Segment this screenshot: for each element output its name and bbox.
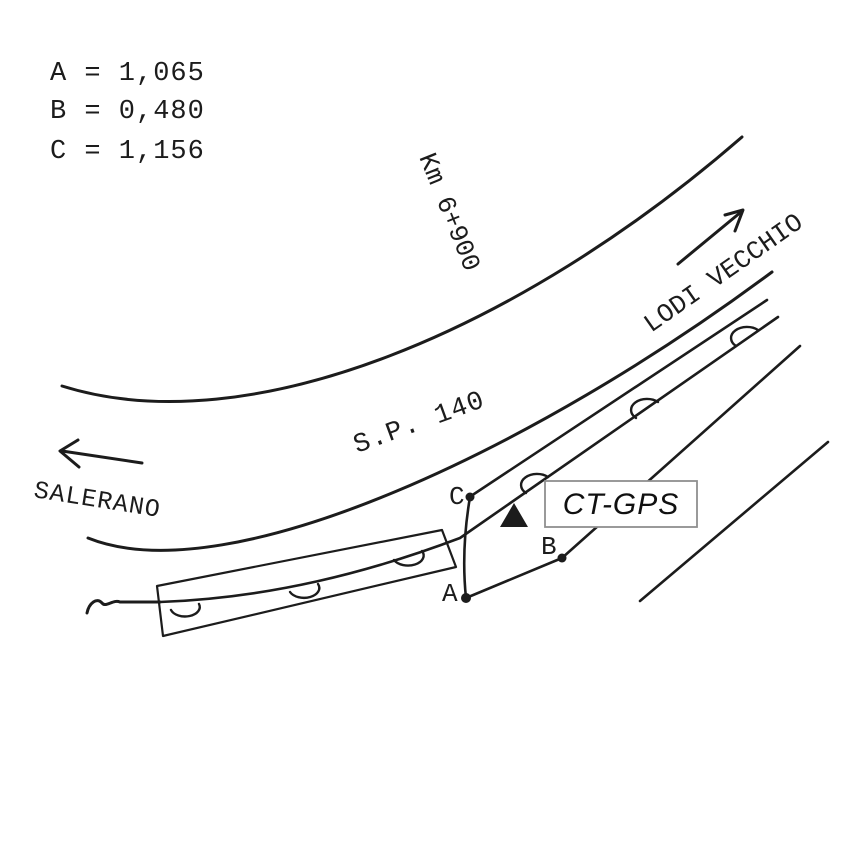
legend-line-a: A = 1,065 [50,59,205,89]
survey-point-a [461,593,471,603]
site-sketch-canvas: CT-GPS A = 1,065 B = 0,480 C = 1,156 S.P… [0,0,866,866]
point-label-a: A [442,579,458,609]
baseline-a-b [466,558,562,598]
station-label: CT-GPS [563,488,680,521]
sketch-page: CT-GPS A = 1,065 B = 0,480 C = 1,156 S.P… [0,0,866,866]
legend-line-c: C = 1,156 [50,137,205,167]
guardrail-bump [171,604,200,616]
point-label-b: B [541,532,557,562]
legend-line-b: B = 0,480 [50,97,205,127]
legend: A = 1,065 B = 0,480 C = 1,156 [50,59,205,167]
point-label-c: C [449,482,465,512]
road-name-label: S.P. 140 [350,386,490,461]
destination-salerano-label: SALERANO [32,476,163,525]
km-marker-label: Km 6+900 [412,149,487,276]
guardrail-bump [731,327,758,346]
guardrail-bump [521,474,548,493]
baseline-c-a [464,497,470,598]
guardrail-top-line [471,300,767,496]
guardrail-squiggle-end [87,601,160,613]
salerano-direction-arrow-icon [60,440,142,467]
survey-point-b [558,554,567,563]
survey-point-c [466,493,475,502]
